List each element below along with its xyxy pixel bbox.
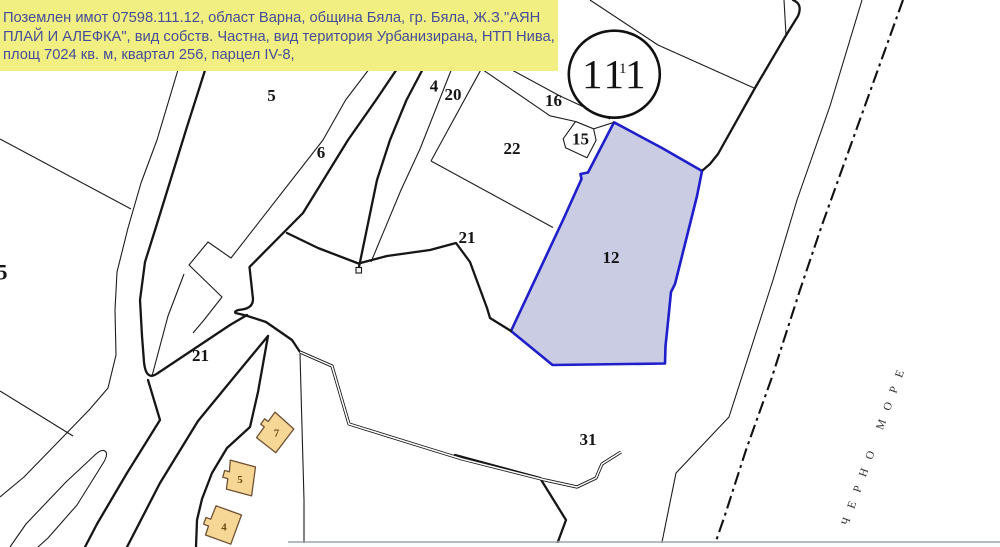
svg-text:4: 4 — [221, 522, 227, 534]
svg-text:31: 31 — [580, 430, 597, 449]
svg-text:21: 21 — [192, 346, 209, 365]
svg-text:5: 5 — [0, 260, 8, 285]
svg-text:20: 20 — [445, 85, 462, 104]
svg-text:4: 4 — [430, 77, 439, 96]
svg-text:6: 6 — [317, 143, 326, 162]
svg-text:111: 111 — [582, 51, 648, 97]
svg-text:7: 7 — [274, 428, 280, 440]
svg-text:15: 15 — [572, 130, 589, 149]
svg-text:21: 21 — [459, 228, 476, 247]
svg-text:5: 5 — [237, 474, 243, 486]
svg-text:16: 16 — [545, 91, 562, 110]
svg-text:22: 22 — [504, 139, 521, 158]
svg-text:12: 12 — [603, 248, 620, 267]
svg-text:5: 5 — [267, 86, 276, 105]
svg-text:1: 1 — [619, 61, 627, 77]
